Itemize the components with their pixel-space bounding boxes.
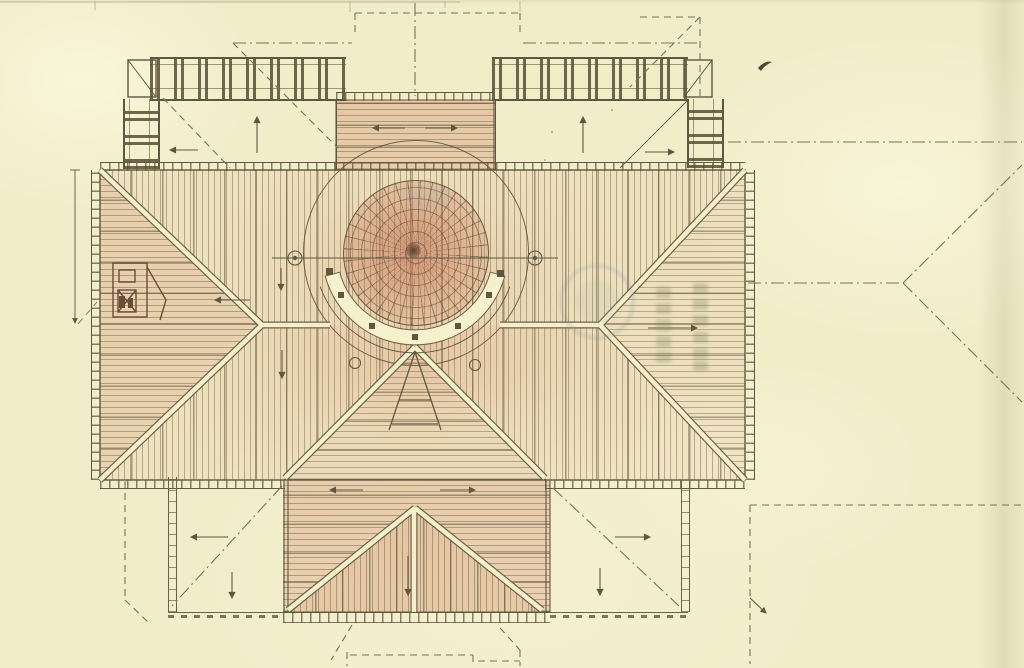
balustrade-right: [687, 99, 724, 168]
eave-bottom-right: [545, 480, 745, 489]
balustrade-top-right: [492, 57, 688, 101]
ink-fleck: [758, 62, 772, 71]
sw-terrace-band: [168, 612, 283, 620]
paper-specks: [544, 109, 613, 161]
eave-right: [746, 170, 755, 480]
balustrade-left: [123, 99, 160, 169]
eave-wing: [283, 612, 550, 623]
eave-bay: [336, 92, 494, 101]
sw-terrace-edge: [168, 477, 177, 612]
eave-bottom-left: [100, 480, 285, 489]
dome-apex: [406, 243, 421, 258]
roof-plan-drawing: [0, 0, 1024, 668]
se-terrace-band: [550, 612, 688, 620]
se-terrace-edge: [681, 480, 690, 612]
eave-left: [91, 170, 100, 480]
balustrade-top-left: [150, 57, 346, 101]
